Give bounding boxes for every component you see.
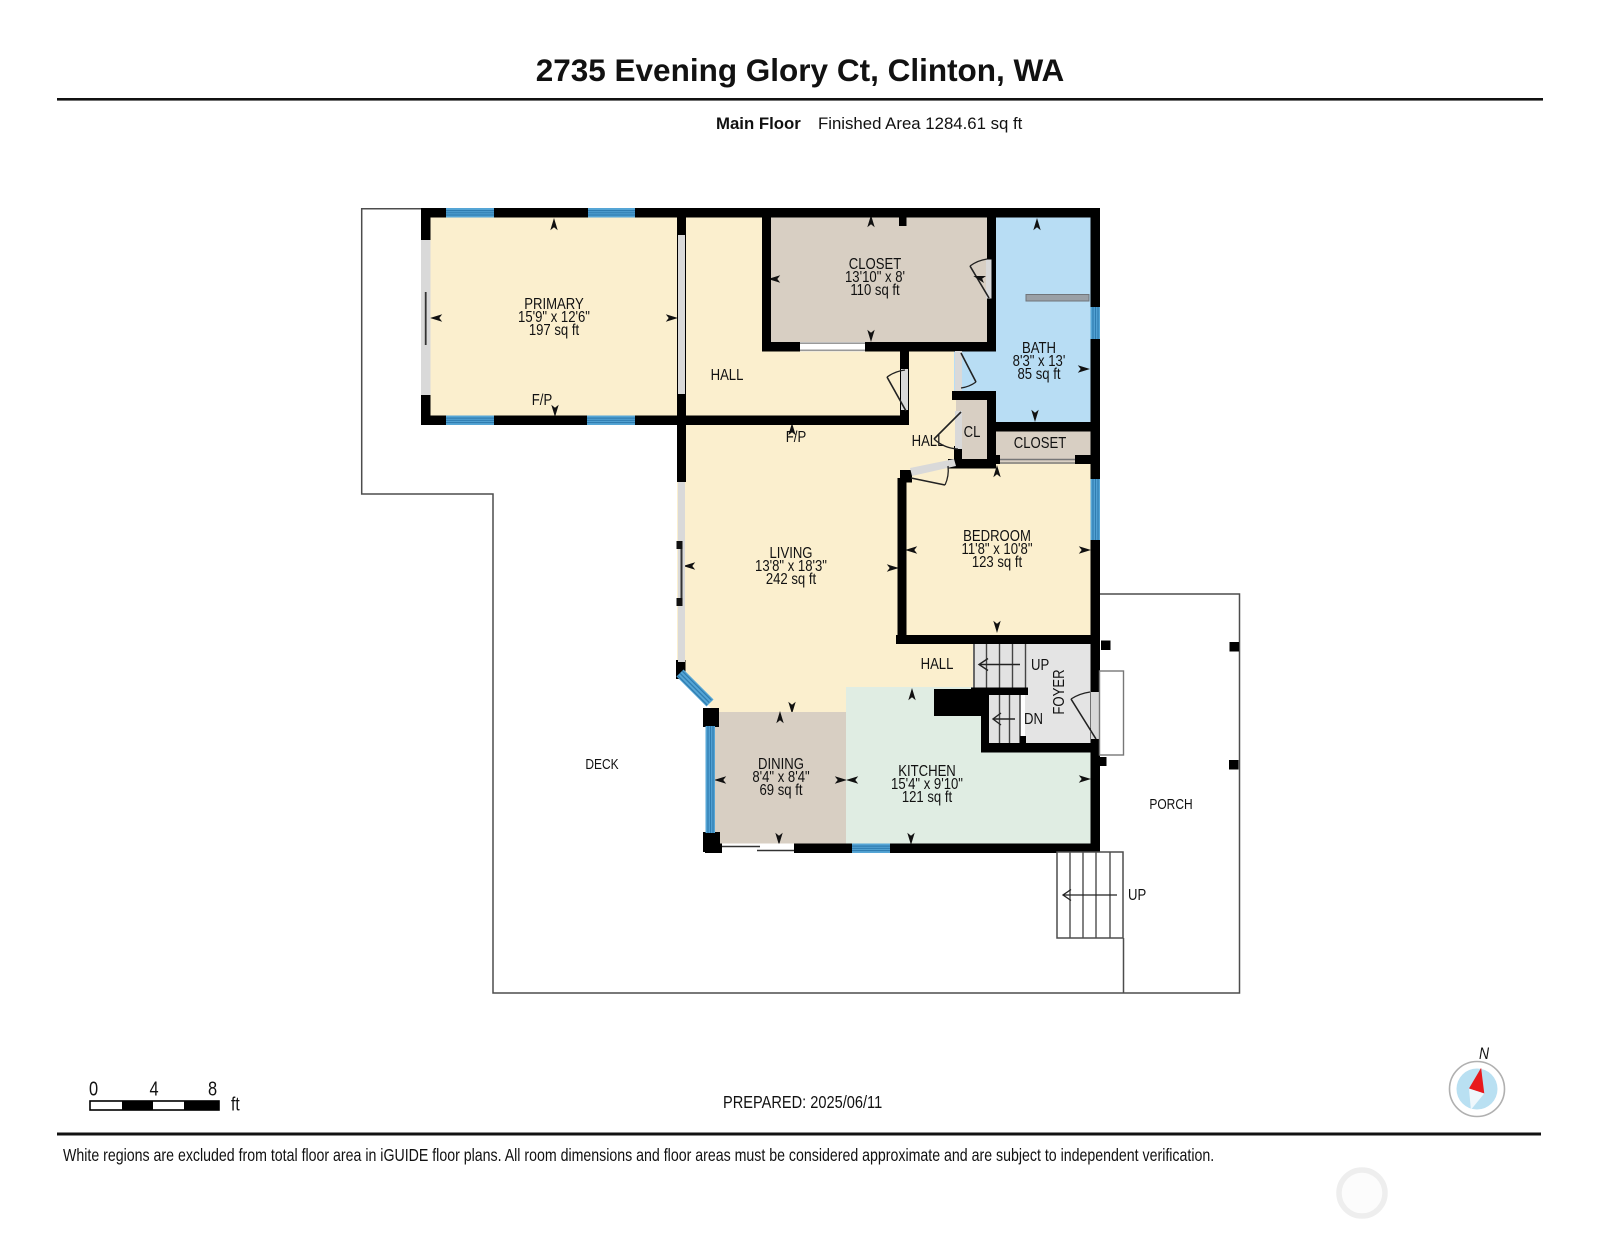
svg-text:F/P: F/P [532, 392, 552, 409]
svg-text:0: 0 [89, 1077, 98, 1100]
svg-text:DECK: DECK [585, 756, 618, 772]
svg-text:UP: UP [1031, 657, 1049, 674]
svg-text:85 sq ft: 85 sq ft [1017, 366, 1060, 383]
svg-text:HALL: HALL [711, 367, 744, 384]
svg-text:PREPARED: 2025/06/11: PREPARED: 2025/06/11 [723, 1093, 882, 1113]
svg-text:HALL: HALL [912, 433, 945, 450]
svg-text:UP: UP [1128, 887, 1146, 904]
svg-text:69 sq ft: 69 sq ft [759, 782, 802, 799]
svg-text:197 sq ft: 197 sq ft [529, 322, 579, 339]
svg-text:242 sq ft: 242 sq ft [766, 571, 816, 588]
svg-text:CLOSET: CLOSET [1014, 435, 1067, 452]
svg-text:FOYER: FOYER [1051, 669, 1068, 714]
svg-text:White regions are excluded fro: White regions are excluded from total fl… [63, 1147, 1214, 1166]
svg-text:N: N [1479, 1045, 1490, 1064]
svg-text:CL: CL [964, 424, 981, 441]
svg-text:8: 8 [208, 1077, 217, 1100]
svg-text:ft: ft [231, 1093, 240, 1115]
svg-text:123 sq ft: 123 sq ft [972, 554, 1022, 571]
svg-text:PORCH: PORCH [1149, 796, 1192, 812]
svg-text:DN: DN [1024, 711, 1043, 728]
svg-text:F/P: F/P [786, 429, 806, 446]
svg-text:2735 Evening Glory Ct, Clinton: 2735 Evening Glory Ct, Clinton, WA [536, 52, 1065, 88]
svg-text:110 sq ft: 110 sq ft [850, 282, 899, 299]
svg-text:121 sq ft: 121 sq ft [902, 789, 952, 806]
svg-text:Main Floor: Main Floor [716, 114, 801, 133]
svg-text:4: 4 [149, 1077, 158, 1100]
svg-text:HALL: HALL [921, 656, 954, 673]
svg-text:Finished Area 1284.61 sq ft: Finished Area 1284.61 sq ft [818, 114, 1023, 133]
